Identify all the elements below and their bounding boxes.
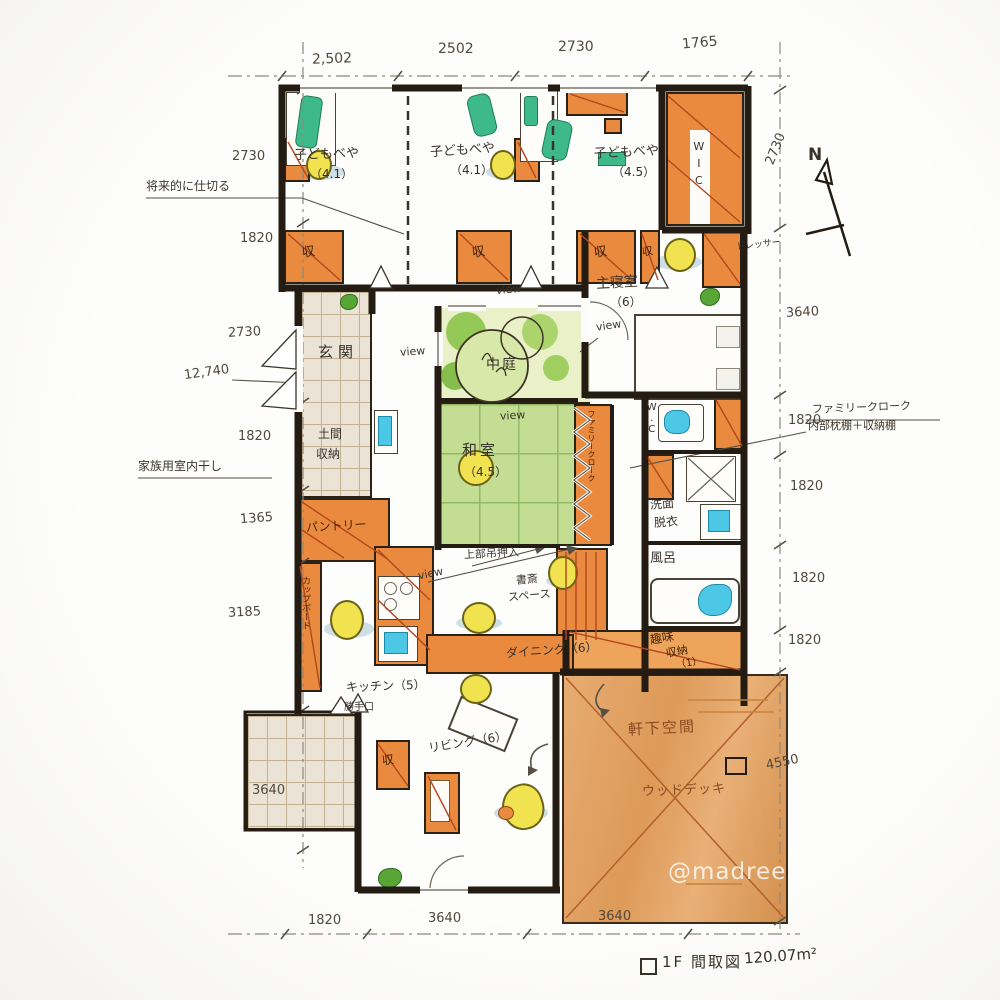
label-closet-2: 収 (471, 245, 486, 261)
note-future-partition: 将来的に仕切る (146, 180, 230, 193)
dim-top-3: 2730 (558, 40, 594, 56)
label-closet-1: 収 (301, 245, 316, 261)
label-closet-3: 収 (593, 245, 608, 261)
label-eaves: 軒下空間 (628, 718, 697, 738)
dim-left-1: 2730 (232, 150, 265, 165)
dim-right-6: 1820 (788, 634, 821, 649)
dim-top-1: 2,502 (312, 51, 353, 68)
label-doma-2: 収納 (316, 448, 340, 461)
label-kids1-size: （4.1） (310, 168, 353, 181)
footer-square-icon (640, 958, 657, 975)
label-master: 主寝室 (596, 275, 639, 293)
view-label-4: view (500, 409, 526, 423)
label-kitchen: キッチン（5） (346, 679, 426, 695)
label-cupboard: カップボード (300, 576, 310, 630)
label-closet-5: 収 (381, 753, 394, 768)
label-backdoor: 勝手口 (344, 702, 374, 713)
compass-n-label: N (808, 146, 822, 165)
label-kids3-size: （4.5） (612, 166, 655, 179)
label-study-1: 書斎 (516, 573, 539, 587)
label-courtyard: 中庭 (486, 358, 518, 374)
label-wic: WIC (692, 140, 704, 191)
label-kids1: 子どもべや (294, 147, 359, 164)
dim-left-3: 2730 (228, 325, 262, 341)
label-senmen-1: 洗面 (650, 497, 675, 512)
dim-left-4: 1820 (238, 430, 271, 445)
note-family-cloak-2: 内部枕棚＋収納棚 (808, 420, 896, 432)
view-label-1: view (496, 283, 522, 297)
label-doma-1: 土間 (318, 428, 342, 441)
dim-right-4: 1820 (790, 480, 823, 495)
dim-right-2: 3640 (786, 305, 820, 321)
label-genkan: 玄関 (318, 344, 358, 361)
label-bath: 風呂 (650, 552, 676, 567)
dim-left-2: 1820 (240, 232, 273, 247)
dim-left-6: 3185 (228, 605, 262, 621)
dim-right-5: 1820 (792, 572, 825, 587)
label-washitsu: 和室 (462, 442, 498, 459)
label-family-cloak-strip: ファミリークローク (586, 410, 595, 482)
dim-top-2: 2502 (438, 42, 474, 58)
label-closet-4: 収 (641, 245, 654, 259)
label-deck: ウッドデッキ (642, 783, 726, 800)
label-wc: W.C (646, 402, 657, 435)
plan-linework (0, 0, 1000, 1000)
watermark: @madree (668, 860, 786, 886)
label-kids2-size: （4.1） (450, 164, 493, 177)
label-washitsu-size: （4.5） (464, 466, 507, 479)
note-indoor-drying: 家族用室内干し (138, 460, 222, 473)
dim-bottom-3: 3640 (598, 910, 631, 925)
footer-title: 1F 間取図 (662, 954, 742, 971)
dim-top-4: 1765 (681, 34, 718, 53)
label-master-size: （6） (610, 296, 642, 309)
dim-left-7: 3640 (252, 784, 285, 799)
dim-bottom-2: 3640 (428, 912, 461, 927)
dim-bottom-1: 1820 (308, 914, 341, 929)
dim-left-5: 1365 (240, 511, 274, 528)
label-senmen-2: 脱衣 (654, 515, 679, 530)
floor-plan-sketch: 2,502 2502 2730 1765 1820 3640 3640 2730… (0, 0, 1000, 1000)
view-label-3: view (400, 345, 426, 359)
